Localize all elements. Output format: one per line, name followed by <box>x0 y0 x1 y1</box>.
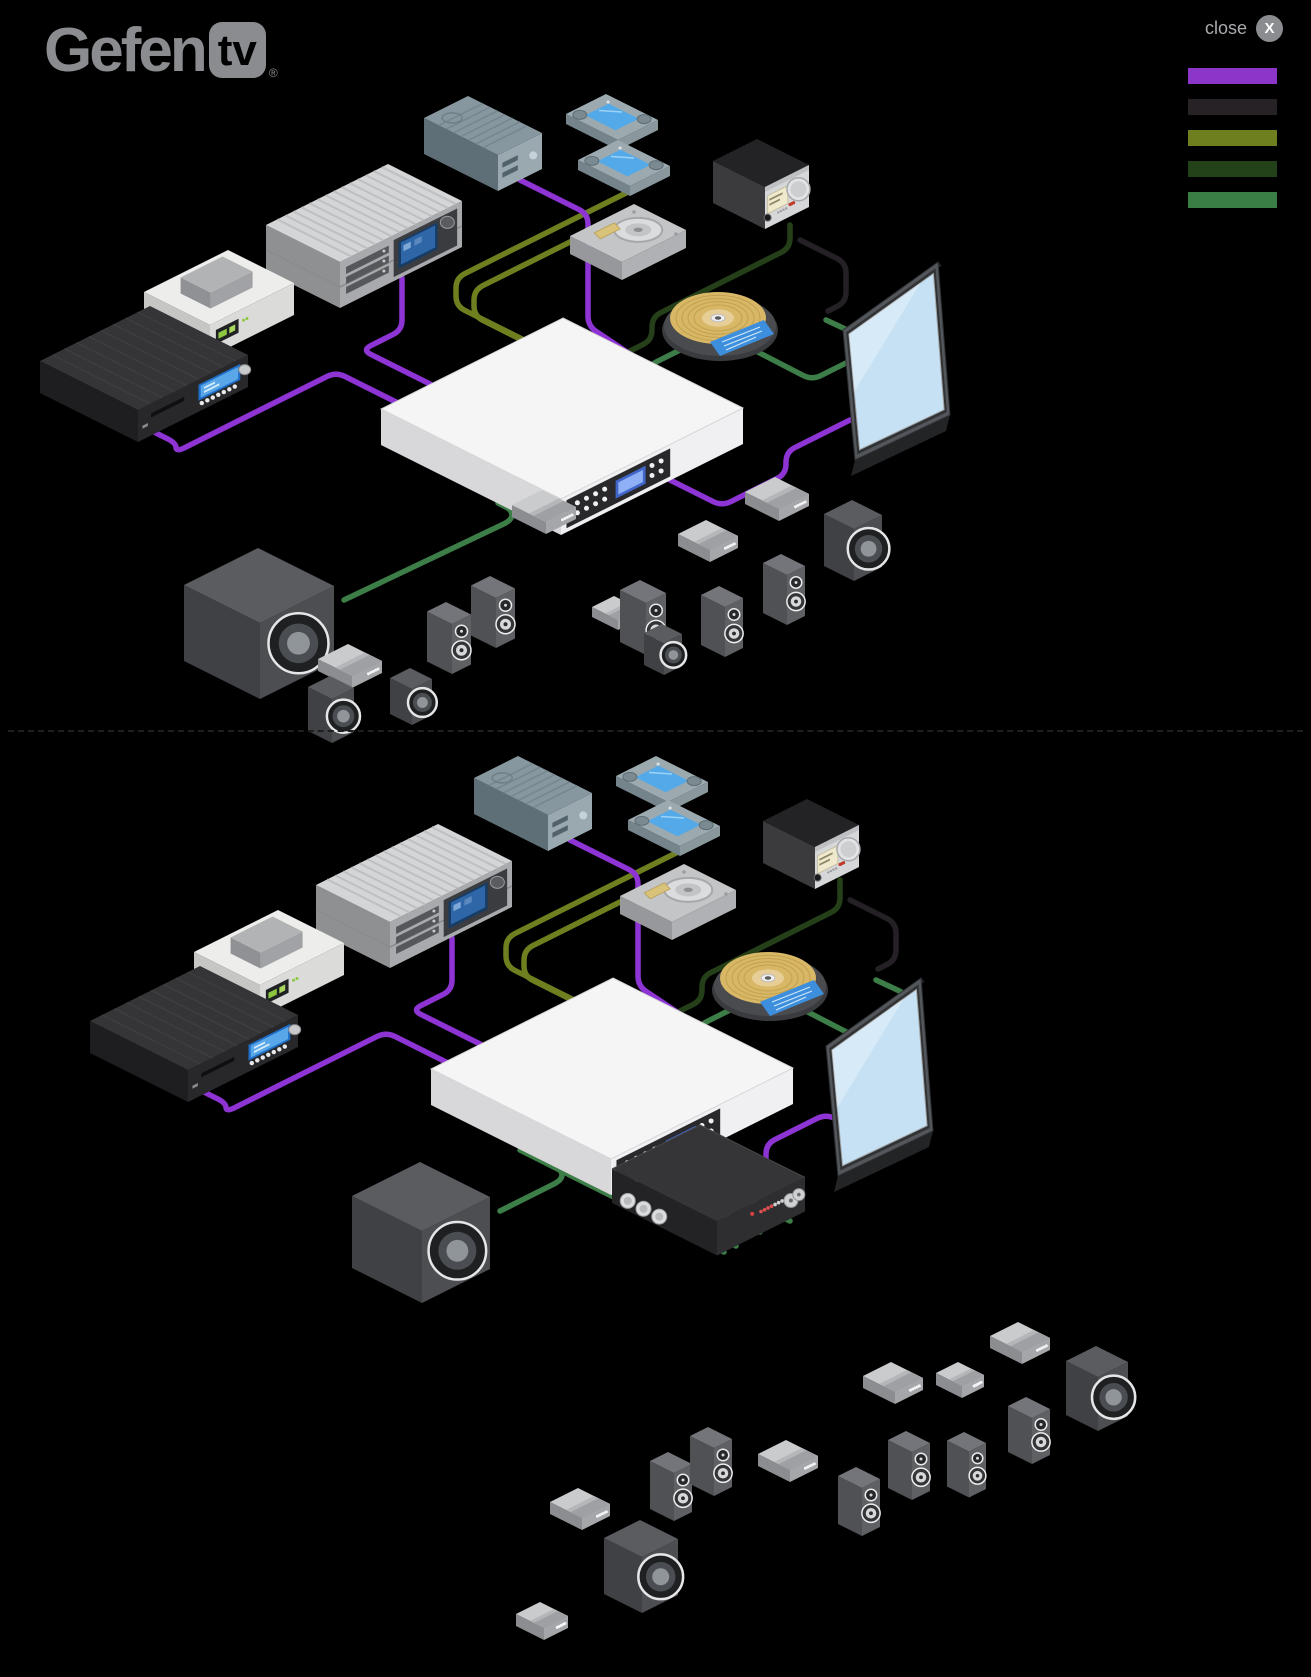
cable-black-radio-to-tv <box>800 240 846 311</box>
gefen-tv-logo: Gefen tv ® <box>44 20 278 82</box>
game-controller-2 <box>578 140 670 196</box>
legend-swatch-olive <box>1188 130 1277 146</box>
game-controller-1 <box>566 94 658 150</box>
media-server <box>316 824 512 968</box>
cable-purple-server-to-switcher <box>416 938 498 1053</box>
legend-swatch-purple <box>1188 68 1277 84</box>
game-controller-2 <box>628 800 720 856</box>
cable-green-switcher-to-subwoofer <box>500 1163 562 1211</box>
subwoofer-center <box>604 1520 683 1613</box>
game-console <box>424 96 542 191</box>
diagram-system-2 <box>90 756 1135 1640</box>
speaker-receiver-5 <box>936 1362 984 1398</box>
cube-speaker-2 <box>390 668 437 725</box>
game-console <box>474 756 592 851</box>
logo-tv-badge: tv <box>209 22 266 78</box>
speaker-receiver-1 <box>516 1602 568 1640</box>
bookshelf-speaker-2 <box>471 576 515 648</box>
close-label: close <box>1205 18 1247 39</box>
bookshelf-speaker-4 <box>701 586 743 657</box>
subwoofer-left <box>352 1162 490 1303</box>
flat-panel-tv <box>826 978 933 1192</box>
table-radio <box>763 799 860 889</box>
legend-swatch-green <box>1188 192 1277 208</box>
cable-purple-server-to-switcher <box>366 278 448 393</box>
logo-registered-mark: ® <box>269 66 278 80</box>
subwoofer-right <box>824 500 889 581</box>
bookshelf-speaker-5 <box>1008 1397 1050 1464</box>
bookshelf-speaker-4 <box>888 1431 930 1500</box>
cube-speaker-3 <box>644 624 686 675</box>
diagram-separator <box>8 730 1303 732</box>
bookshelf-speaker-6 <box>947 1432 986 1498</box>
bookshelf-speaker-5 <box>763 554 805 625</box>
logo-text: Gefen <box>44 20 205 82</box>
speaker-receiver-4 <box>678 520 738 562</box>
speaker-receiver-6 <box>990 1322 1050 1364</box>
bookshelf-speaker-1 <box>427 602 471 674</box>
cable-legend <box>1188 68 1277 208</box>
popup-stage: Gefen tv ® close X <box>0 0 1311 1677</box>
speaker-receiver-2 <box>550 1488 610 1530</box>
diagram-system-1 <box>40 94 950 743</box>
bookshelf-speaker-2 <box>690 1427 732 1496</box>
subwoofer-right <box>1066 1346 1135 1431</box>
media-server <box>266 164 462 308</box>
subwoofer-left <box>184 548 334 699</box>
wiring-diagrams <box>0 0 1311 1677</box>
cable-black-radio-to-tv <box>850 900 896 969</box>
speaker-receiver-5 <box>745 477 809 521</box>
legend-swatch-dark-green <box>1188 161 1277 177</box>
legend-swatch-black <box>1188 99 1277 115</box>
close-x-icon[interactable]: X <box>1256 15 1283 42</box>
table-radio <box>713 139 810 229</box>
close-button[interactable]: close X <box>1205 15 1283 42</box>
flat-panel-tv <box>843 262 950 476</box>
speaker-receiver-4 <box>863 1362 923 1404</box>
bookshelf-speaker-3 <box>838 1467 880 1536</box>
bookshelf-speaker-1 <box>650 1452 692 1521</box>
speaker-receiver-3 <box>758 1440 818 1482</box>
